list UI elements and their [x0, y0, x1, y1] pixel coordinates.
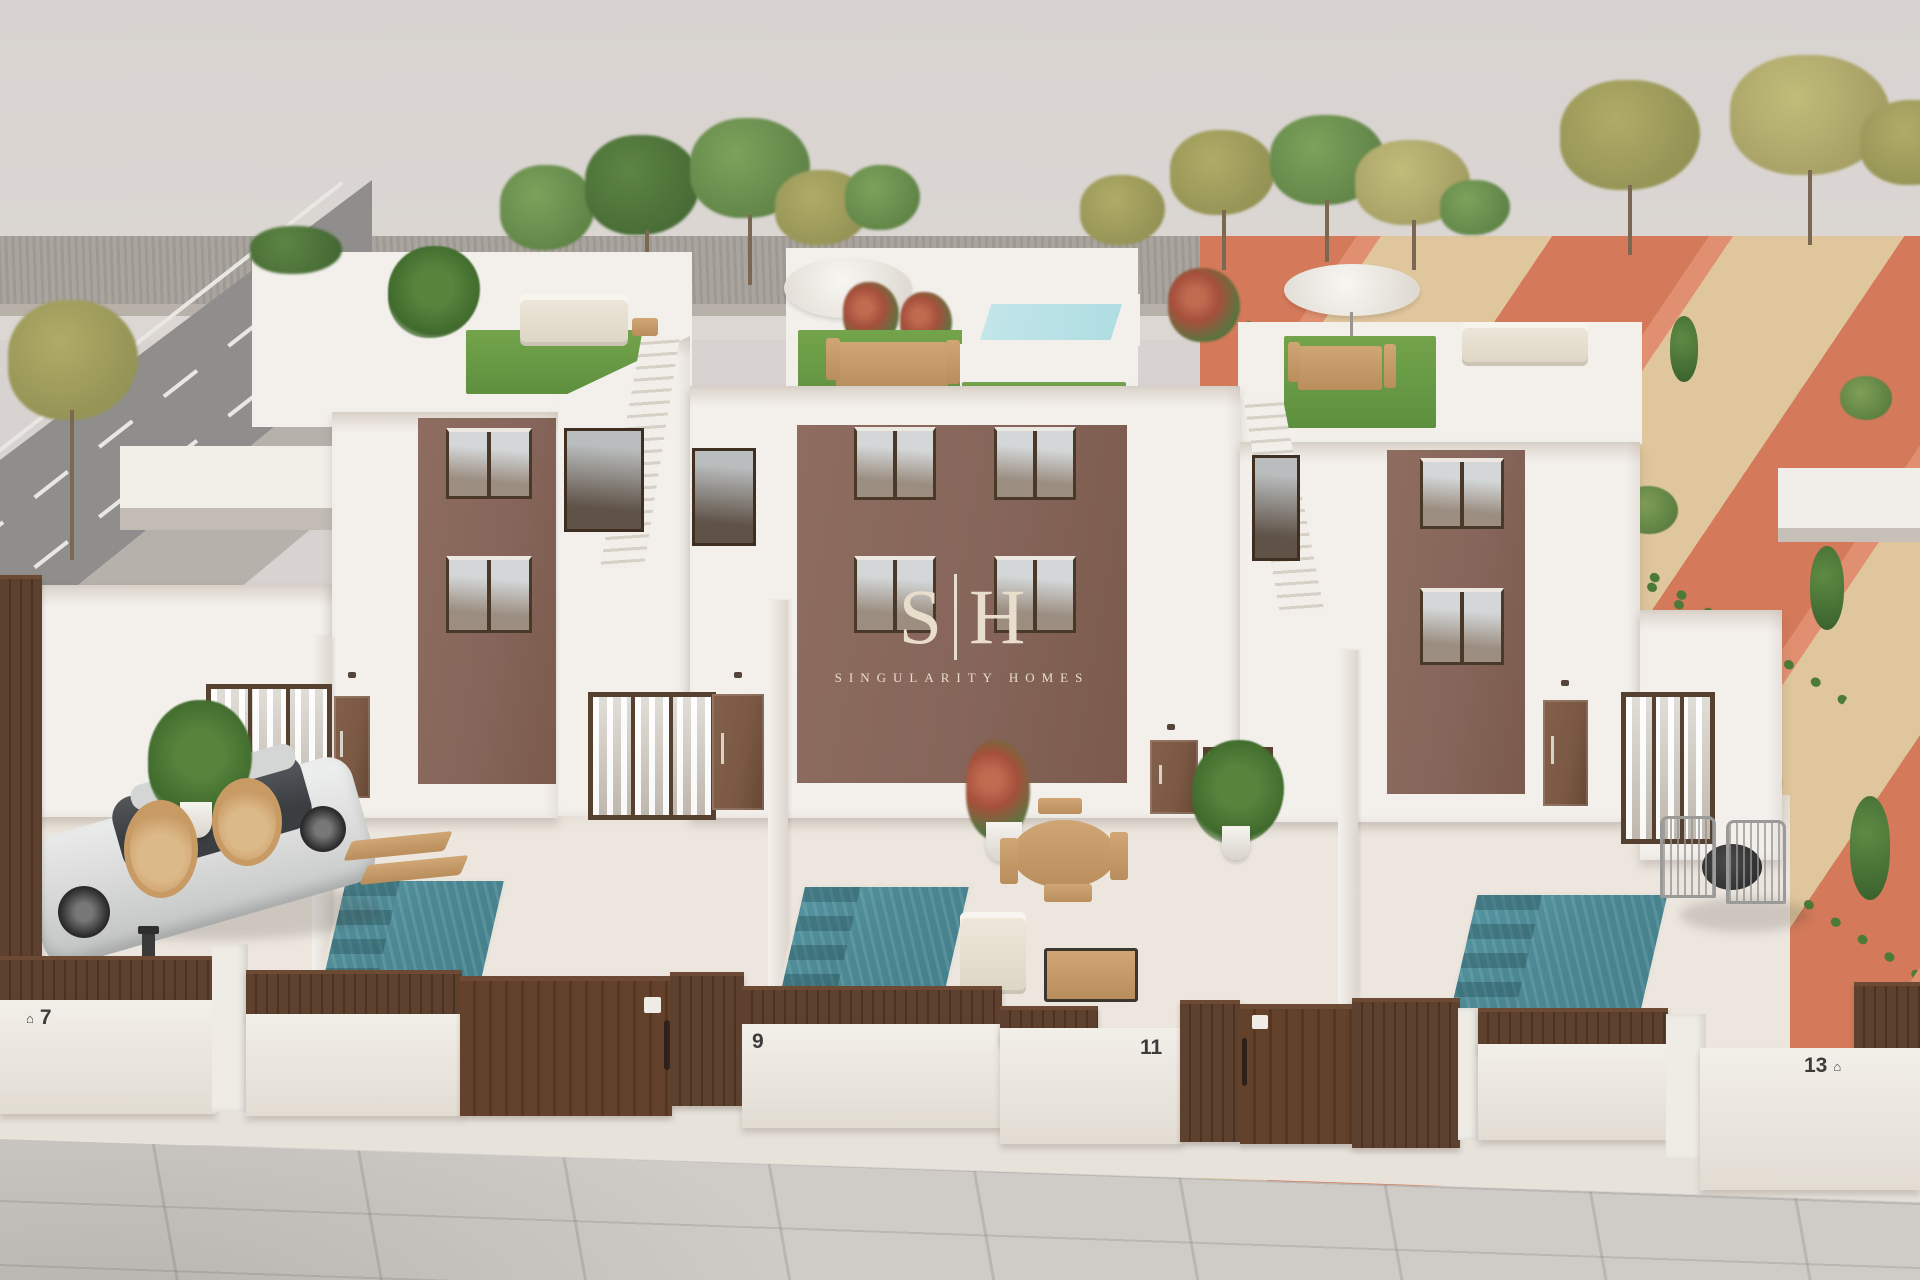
- logo-letter-h: H: [969, 578, 1025, 656]
- sliding-door: [588, 692, 716, 820]
- front-wall: [1478, 1044, 1668, 1140]
- cypress-tree: [1850, 796, 1890, 900]
- watermark: S H SINGULARITY HOMES: [812, 574, 1112, 700]
- intercom-icon: [1252, 1015, 1268, 1029]
- address-plate-icon: ⌂: [26, 1011, 34, 1026]
- street-tree-trunk: [70, 410, 74, 560]
- house-number-9: 9: [752, 1030, 764, 1054]
- dining-chair: [1044, 884, 1092, 902]
- address-7: ⌂ 7: [26, 1006, 52, 1030]
- house-number-11: 11: [1140, 1036, 1162, 1060]
- window: [994, 427, 1076, 500]
- side-table: [632, 318, 658, 336]
- house-number-7: 7: [40, 1006, 52, 1030]
- dining-chair: [1110, 832, 1128, 880]
- pool-fence: [246, 970, 462, 1018]
- car-wheel: [300, 806, 346, 852]
- logo-divider: [954, 574, 957, 660]
- porch-light: [348, 672, 356, 678]
- window: [446, 428, 532, 499]
- intercom-icon: [644, 997, 661, 1013]
- bistro-chair: [1726, 820, 1786, 904]
- entry-door-13: [1543, 700, 1588, 806]
- tree-trunk: [1325, 200, 1329, 262]
- tree-trunk: [1628, 185, 1632, 255]
- wicker-chair: [124, 800, 198, 898]
- side-fence: [0, 575, 42, 1015]
- fence: [1352, 998, 1460, 1148]
- porch-light: [1167, 724, 1175, 730]
- bougainvillea: [1168, 268, 1240, 342]
- window: [446, 556, 532, 633]
- pool-fence: [0, 956, 216, 1004]
- neighbor-wall: [120, 446, 334, 530]
- brand-subtitle: SINGULARITY HOMES: [812, 670, 1112, 686]
- door-handle: [1159, 765, 1162, 784]
- window: [1420, 458, 1504, 529]
- yard-divider-wall: [1338, 650, 1358, 1010]
- balcony-window: [1252, 455, 1300, 561]
- tree-trunk: [1808, 170, 1812, 245]
- parasol: [1284, 264, 1420, 316]
- cypress-tree: [1670, 316, 1698, 382]
- balcony-window: [692, 448, 756, 546]
- yard-divider-wall: [768, 600, 788, 1005]
- gate-handle: [1242, 1038, 1247, 1086]
- outdoor-sofa: [520, 294, 628, 346]
- corner-sofa: [1462, 322, 1588, 366]
- wicker-chair: [212, 778, 282, 866]
- entry-door-9: [712, 694, 764, 810]
- tree-trunk: [1222, 210, 1226, 270]
- wall-pillar: [1458, 1008, 1480, 1140]
- dining-chair: [826, 338, 840, 380]
- address-plate-icon: ⌂: [1833, 1059, 1841, 1074]
- round-dining-table: [1012, 820, 1116, 888]
- address-9: 9: [752, 1030, 764, 1054]
- dining-chair: [1038, 798, 1082, 814]
- plant-pot: [1222, 826, 1250, 860]
- dining-chair: [1000, 838, 1018, 884]
- fence: [670, 972, 744, 1106]
- stair-window: [564, 428, 644, 532]
- dining-chair: [1288, 342, 1300, 382]
- window: [854, 427, 936, 500]
- fence: [1180, 1000, 1240, 1142]
- bistro-chair: [1660, 816, 1716, 898]
- garden-lamp-cap: [138, 926, 159, 934]
- door-handle: [721, 733, 724, 763]
- door-handle: [1551, 736, 1554, 764]
- garden-wall: [1778, 468, 1920, 542]
- porch-light: [734, 672, 742, 678]
- rooftop-pool: [980, 304, 1122, 340]
- pool-fence: [742, 986, 1002, 1028]
- tree-trunk: [748, 215, 752, 285]
- terrace-wall: [960, 344, 1136, 386]
- tree-trunk: [1412, 220, 1416, 270]
- entry-door-11: [1150, 740, 1198, 814]
- house-number-13: 13: [1804, 1054, 1827, 1078]
- cypress-tree: [1810, 546, 1844, 630]
- car-wheel: [58, 886, 110, 938]
- dining-chair: [946, 340, 960, 384]
- dining-table: [836, 342, 948, 390]
- coffee-table: [1044, 948, 1138, 1002]
- wall-pillar: [212, 944, 248, 1112]
- architectural-render: S H SINGULARITY HOMES ⌂ 7: [0, 0, 1920, 1280]
- brand-logo: S H: [812, 574, 1112, 660]
- olive-tree: [1840, 376, 1892, 420]
- dining-chair: [1384, 344, 1396, 388]
- door-handle: [340, 731, 343, 758]
- driveway-gate: [460, 976, 672, 1116]
- dining-table: [1298, 346, 1382, 390]
- logo-letter-s: S: [899, 578, 942, 656]
- front-wall-9: [742, 1024, 1002, 1128]
- address-11: 11: [1140, 1036, 1162, 1060]
- front-wall: [246, 1014, 462, 1116]
- lounge-chair: [960, 912, 1026, 994]
- address-13: 13 ⌂: [1804, 1054, 1841, 1078]
- porch-light: [1561, 680, 1569, 686]
- window: [1420, 588, 1504, 665]
